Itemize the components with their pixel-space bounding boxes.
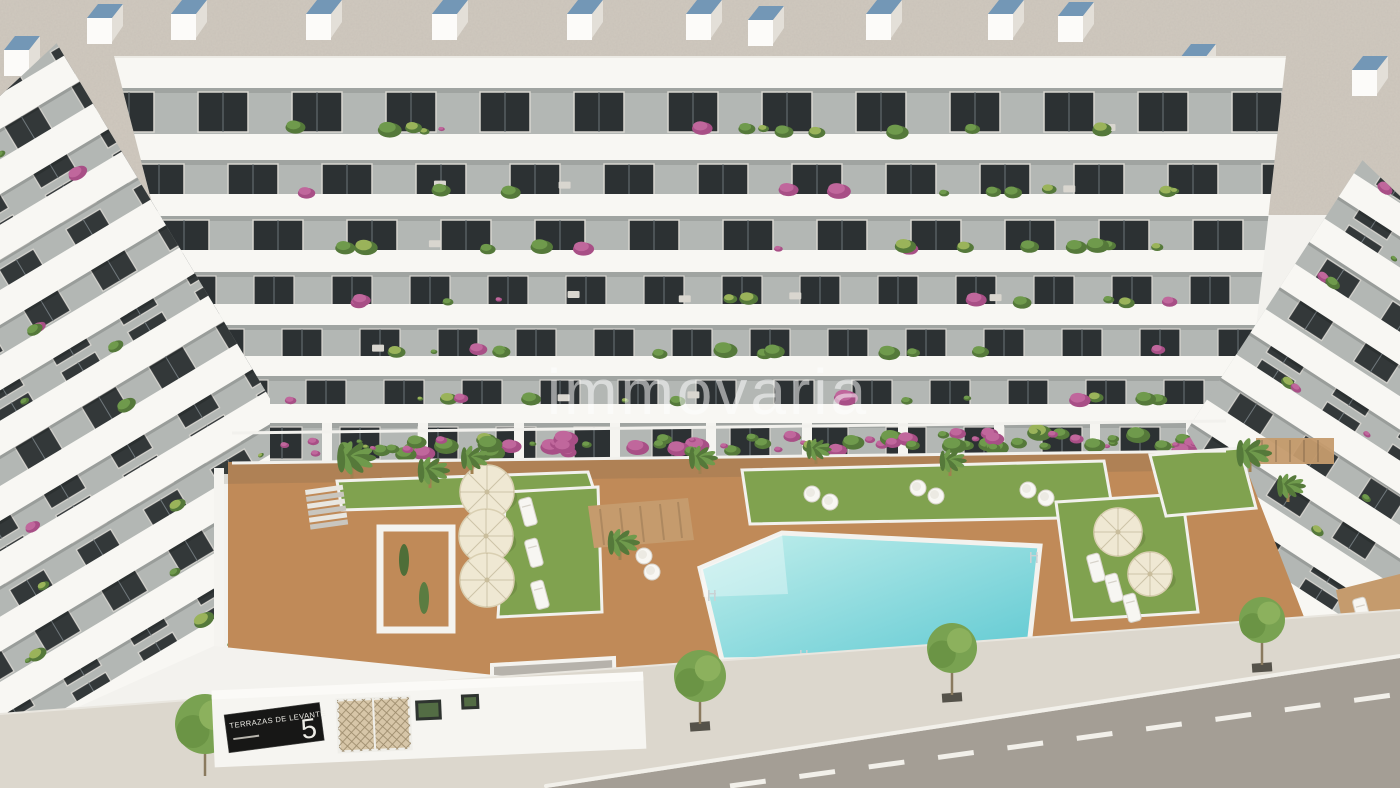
terrace-divider: [322, 423, 332, 464]
balcony-furniture: [559, 182, 571, 189]
plant-highlight: [418, 397, 422, 400]
plant-highlight: [721, 443, 727, 447]
skylight-front: [306, 14, 331, 40]
plant-highlight: [1119, 297, 1130, 304]
plant-highlight: [828, 183, 845, 194]
plant-highlight: [843, 435, 858, 445]
balcony-slab: [112, 58, 1288, 88]
plant-highlight: [657, 434, 668, 441]
skylight-front: [87, 18, 112, 44]
ladder-rail: [708, 590, 710, 601]
plant-highlight: [776, 125, 789, 133]
bean-bag-top: [930, 490, 939, 499]
plant-highlight: [281, 442, 287, 446]
plant-highlight: [1155, 440, 1167, 448]
plant-highlight: [1108, 435, 1116, 440]
bean-bag: [1038, 490, 1054, 506]
plant-highlight: [689, 438, 694, 441]
plant-highlight: [1005, 187, 1017, 195]
bean-bag-top: [912, 482, 921, 491]
lawn-left-garden: [498, 487, 602, 617]
plant-highlight: [308, 438, 316, 443]
cypress-tree: [419, 582, 429, 614]
bean-bag-top: [824, 496, 833, 505]
plant-highlight: [311, 450, 318, 454]
plant-highlight: [1136, 392, 1150, 401]
plant-highlight: [496, 297, 501, 300]
plant-highlight: [780, 183, 794, 192]
plant-highlight: [1104, 296, 1112, 301]
bean-bag-top: [1022, 484, 1031, 493]
entrance-gate: [337, 697, 411, 752]
plant-highlight: [363, 445, 368, 448]
bean-bag-top: [806, 488, 815, 497]
plant-highlight: [1089, 392, 1100, 399]
plant-highlight: [406, 122, 418, 130]
balcony-slab: [112, 194, 1288, 216]
planter-box: [380, 528, 452, 630]
plant-highlight: [740, 292, 753, 301]
plant-highlight: [530, 441, 535, 444]
bean-bag: [804, 486, 820, 502]
entrance-window-reflection: [418, 703, 439, 718]
balcony-furniture: [372, 345, 384, 352]
plant-highlight: [502, 186, 516, 195]
plant-highlight: [470, 343, 483, 351]
plant-highlight: [389, 346, 402, 354]
plant-highlight: [774, 447, 780, 451]
plant-highlight: [502, 439, 516, 448]
plant-highlight: [906, 441, 916, 447]
plant-highlight: [973, 346, 985, 354]
bean-bag: [636, 548, 652, 564]
plant-highlight: [433, 184, 446, 193]
plant-highlight: [387, 444, 396, 450]
plant-highlight: [739, 123, 751, 131]
floor-window-row: [114, 160, 1286, 194]
bean-bag: [928, 488, 944, 504]
plant-highlight: [441, 393, 453, 401]
balcony-slab: [112, 304, 1288, 325]
skylight-front: [866, 14, 891, 40]
plant-highlight: [972, 436, 977, 440]
watermark: immovaria: [547, 356, 869, 428]
entrance-window-reflection: [464, 697, 476, 707]
plant-highlight: [481, 244, 492, 251]
plant-highlight: [965, 124, 976, 131]
plant-highlight: [522, 392, 536, 401]
parasol-pole: [485, 490, 490, 495]
plant-highlight: [1040, 442, 1048, 447]
tree-canopy-light: [1257, 602, 1280, 625]
plant-highlight: [479, 436, 496, 447]
tree-canopy-light: [947, 628, 972, 653]
bean-bag: [822, 494, 838, 510]
skylight-front: [4, 50, 29, 76]
skylight-front: [748, 20, 773, 46]
tree-canopy-light: [695, 655, 721, 681]
skylight-front: [1058, 16, 1083, 42]
plant-highlight: [353, 294, 366, 302]
plant-highlight: [356, 240, 372, 251]
plant-highlight: [774, 246, 780, 250]
ladder-rail: [714, 590, 716, 601]
balcony-furniture: [429, 240, 441, 247]
plant-highlight: [439, 127, 443, 130]
skylight-front: [988, 14, 1013, 40]
floor-window-row: [114, 325, 1286, 356]
plant-highlight: [654, 440, 663, 446]
plant-highlight: [357, 440, 361, 443]
plant-highlight: [879, 346, 894, 356]
plant-highlight: [436, 436, 444, 441]
plant-highlight: [379, 122, 396, 133]
cypress-tree: [399, 544, 409, 576]
plant-highlight: [574, 242, 589, 252]
plant-highlight: [1127, 427, 1144, 438]
floor-windows: [114, 160, 1286, 194]
plant-highlight: [443, 298, 451, 303]
balcony-furniture: [1063, 185, 1075, 192]
ladder-rail: [1030, 552, 1032, 563]
plant-highlight: [285, 397, 293, 402]
plant-highlight: [967, 293, 982, 302]
plant-highlight: [1070, 434, 1080, 440]
balcony-slab: [112, 250, 1288, 272]
plant-highlight: [1070, 393, 1085, 403]
plant-highlight: [724, 294, 734, 300]
parasol-pole: [485, 578, 490, 583]
plant-highlight: [627, 440, 643, 450]
plant-highlight: [784, 431, 796, 439]
plant-highlight: [809, 127, 821, 135]
plant-highlight: [286, 120, 300, 129]
plant-highlight: [940, 190, 947, 195]
plant-highlight: [765, 345, 780, 354]
architectural-render: TERRAZAS DE LEVANTE 5 immovaria: [0, 0, 1400, 788]
plant-highlight: [1085, 438, 1100, 448]
plant-highlight: [1012, 438, 1023, 445]
plant-highlight: [886, 438, 897, 445]
plant-highlight: [943, 437, 960, 448]
plant-highlight: [1067, 240, 1082, 250]
plant-highlight: [408, 435, 422, 444]
plant-highlight: [668, 441, 684, 451]
bean-bag-top: [638, 550, 647, 559]
plant-highlight: [715, 342, 732, 353]
plant-highlight: [495, 348, 505, 354]
parasol-pole: [484, 534, 489, 539]
plant-highlight: [958, 242, 970, 250]
plant-highlight: [829, 444, 842, 453]
plant-highlight: [896, 239, 911, 249]
plant-highlight: [1043, 184, 1053, 191]
floor-windows: [114, 325, 1286, 356]
ladder-rung: [708, 593, 716, 594]
plant-highlight: [902, 397, 910, 402]
plant-highlight: [693, 121, 707, 130]
plant-highlight: [370, 446, 374, 449]
bean-bag-top: [646, 566, 655, 575]
plant-highlight: [582, 441, 589, 445]
balcony-furniture: [679, 295, 691, 302]
skylight-front: [567, 14, 592, 40]
plant-highlight: [747, 434, 756, 440]
plant-highlight: [1014, 296, 1027, 304]
ladder-rung: [1030, 555, 1038, 556]
plant-highlight: [989, 444, 998, 450]
plant-highlight: [1087, 238, 1103, 248]
plant-highlight: [907, 348, 916, 354]
plant-highlight: [299, 187, 311, 195]
skylight-front: [1352, 70, 1377, 96]
balcony-slab: [112, 134, 1288, 160]
plant-highlight: [964, 396, 969, 399]
plant-highlight: [1172, 442, 1177, 445]
plant-highlight: [431, 350, 436, 353]
plant-highlight: [1021, 240, 1034, 249]
plant-highlight: [336, 241, 350, 250]
plant-highlight: [532, 239, 548, 249]
balcony-furniture: [990, 294, 1002, 301]
bean-bag: [1020, 482, 1036, 498]
balcony-furniture: [789, 292, 801, 299]
plant-highlight: [865, 436, 872, 441]
bean-bag: [910, 480, 926, 496]
wood-bridge: [588, 498, 694, 548]
plant-highlight: [898, 432, 912, 441]
skylight-front: [171, 14, 196, 40]
plant-highlight: [986, 187, 997, 194]
parasol-pole: [1116, 530, 1121, 535]
plant-highlight: [1152, 243, 1160, 248]
plant-highlight: [1048, 431, 1055, 436]
plant-highlight: [1029, 428, 1038, 434]
skylight-front: [432, 14, 457, 40]
plant-highlight: [555, 440, 570, 450]
skylight-front: [686, 14, 711, 40]
bean-bag: [644, 564, 660, 580]
plant-highlight: [986, 432, 1000, 441]
plant-highlight: [938, 431, 946, 436]
parasol-pole: [1148, 572, 1153, 577]
balcony-furniture: [568, 291, 580, 298]
plant-highlight: [1094, 122, 1107, 130]
plant-highlight: [1152, 345, 1162, 351]
plant-highlight: [653, 349, 664, 356]
plant-highlight: [1163, 297, 1174, 304]
bean-bag-top: [1040, 492, 1049, 501]
render-canvas: TERRAZAS DE LEVANTE 5 immovaria: [0, 0, 1400, 788]
ladder-rail: [1036, 552, 1038, 563]
plant-highlight: [759, 125, 767, 130]
plant-highlight: [887, 125, 903, 135]
plant-highlight: [950, 428, 962, 435]
plant-highlight: [1160, 186, 1172, 194]
plant-highlight: [1171, 188, 1177, 192]
plant-highlight: [455, 394, 465, 400]
